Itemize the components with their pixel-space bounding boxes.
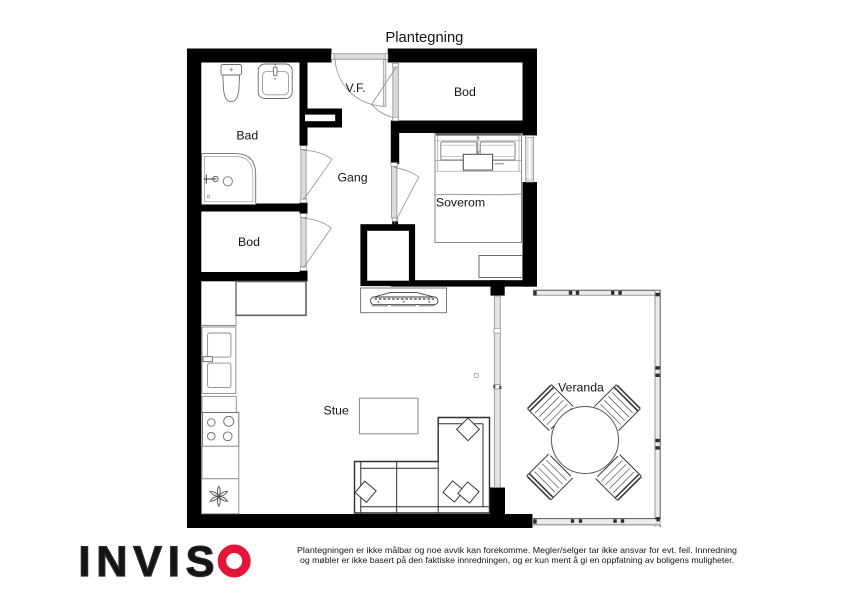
- svg-text:Bod: Bod: [454, 85, 476, 99]
- svg-text:og møbler er ikke basert på de: og møbler er ikke basert på den faktiske…: [300, 555, 734, 565]
- svg-text:V.F.: V.F.: [345, 81, 365, 95]
- svg-text:INVIS: INVIS: [79, 538, 221, 586]
- svg-text:Stue: Stue: [324, 404, 349, 418]
- svg-text:Plantegningen er ikke målbar o: Plantegningen er ikke målbar og noe avvi…: [297, 545, 737, 555]
- svg-text:Soverom: Soverom: [436, 196, 485, 210]
- svg-text:Plantegning: Plantegning: [385, 30, 463, 46]
- svg-text:Bod: Bod: [238, 235, 260, 249]
- svg-text:Veranda: Veranda: [558, 381, 604, 395]
- svg-text:Bad: Bad: [236, 129, 258, 143]
- svg-text:Gang: Gang: [337, 171, 367, 185]
